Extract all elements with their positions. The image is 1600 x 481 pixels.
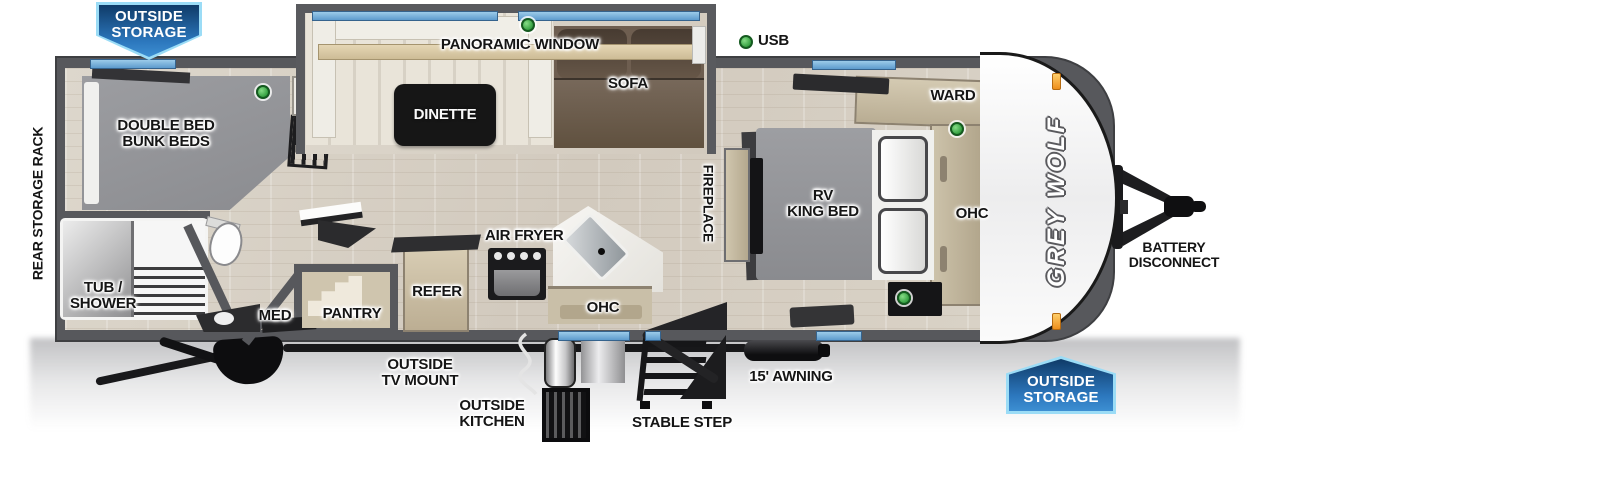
oven-door [494,270,540,296]
front-outside-storage-badge: OUTSIDE STORAGE [1006,356,1116,414]
panoramic-window-glass [518,11,700,21]
air-fryer-label: AIR FRYER [485,228,557,244]
step-foot [702,401,712,409]
tub-shower-label: TUB / SHOWER [70,280,136,312]
ward-label: WARD [922,88,984,104]
clearance-marker [1052,313,1061,330]
badge-text: OUTSIDE STORAGE [96,2,202,60]
kitchen-ohc-label: OHC [573,300,633,316]
rear-outside-storage-badge: OUTSIDE STORAGE [96,2,202,60]
burner [520,252,528,260]
pillow [878,208,928,274]
shower-mat [134,267,205,317]
burner [533,252,541,260]
step-foot [640,401,650,409]
badge-text: OUTSIDE STORAGE [1006,356,1116,414]
entry-door-window [645,331,661,341]
bedroom-ohc-label: OHC [944,206,1000,222]
usb-port-indicator [256,85,270,99]
burner [494,252,502,260]
awning-end-cap [818,344,830,357]
awning-roll [744,340,824,361]
refer-label: REFER [406,284,468,300]
outside-kitchen-label: OUTSIDE KITCHEN [450,398,534,430]
rear-storage-rack-label: REAR STORAGE RACK [31,123,46,283]
fireplace-label: FIREPLACE [701,143,716,263]
pillow [878,136,928,202]
bunk-room-label: DOUBLE BED BUNK BEDS [108,118,224,150]
usb-port-indicator [950,122,964,136]
dinette-table: DINETTE [394,84,496,146]
window [558,331,630,341]
window [812,60,896,70]
stable-step [638,333,728,409]
king-bed-bedding [872,130,934,280]
floorplan-scene: DINETTE PANORAMIC WINDOW SOFA USB DOUBLE… [0,0,1600,481]
bunk-pillow [84,82,99,204]
burner [507,252,515,260]
usb-port-indicator [521,18,535,32]
bathroom-sink [214,312,234,325]
king-bed-label: RV KING BED [782,188,864,220]
faucet [598,248,605,255]
usb-legend-label: USB [758,33,802,49]
usb-port-indicator [897,291,911,305]
outside-kitchen-cooler [544,338,576,388]
cabinet-handle [940,156,947,182]
outside-tv-mount-label: OUTSIDE TV MOUNT [380,357,460,389]
tv [750,158,763,254]
air-fryer-range [488,248,546,300]
dinette-label: DINETTE [414,107,477,123]
panoramic-window-label: PANORAMIC WINDOW [420,37,620,53]
med-label: MED [248,308,302,324]
clearance-marker [1052,73,1061,90]
outside-kitchen-bin [581,339,625,383]
window [816,331,862,341]
usb-legend-dot [739,35,753,49]
brand-logo: GREY WOLF [1043,101,1073,301]
sofa-end-table [692,26,706,64]
stable-step-label: STABLE STEP [632,415,732,431]
outside-kitchen-griddle [542,388,590,442]
entry-bench [790,304,855,327]
battery-disconnect-label: BATTERY DISCONNECT [1122,240,1226,270]
window [90,59,176,69]
cabinet-handle [940,246,947,272]
sofa-label: SOFA [596,76,660,92]
pantry-label: PANTRY [320,306,384,322]
refrigerator-top [391,235,481,253]
dinette-bench-back [312,20,336,138]
fireplace-wall [724,148,750,262]
awning-label: 15' AWNING [748,369,834,385]
panoramic-window-glass [312,11,498,21]
